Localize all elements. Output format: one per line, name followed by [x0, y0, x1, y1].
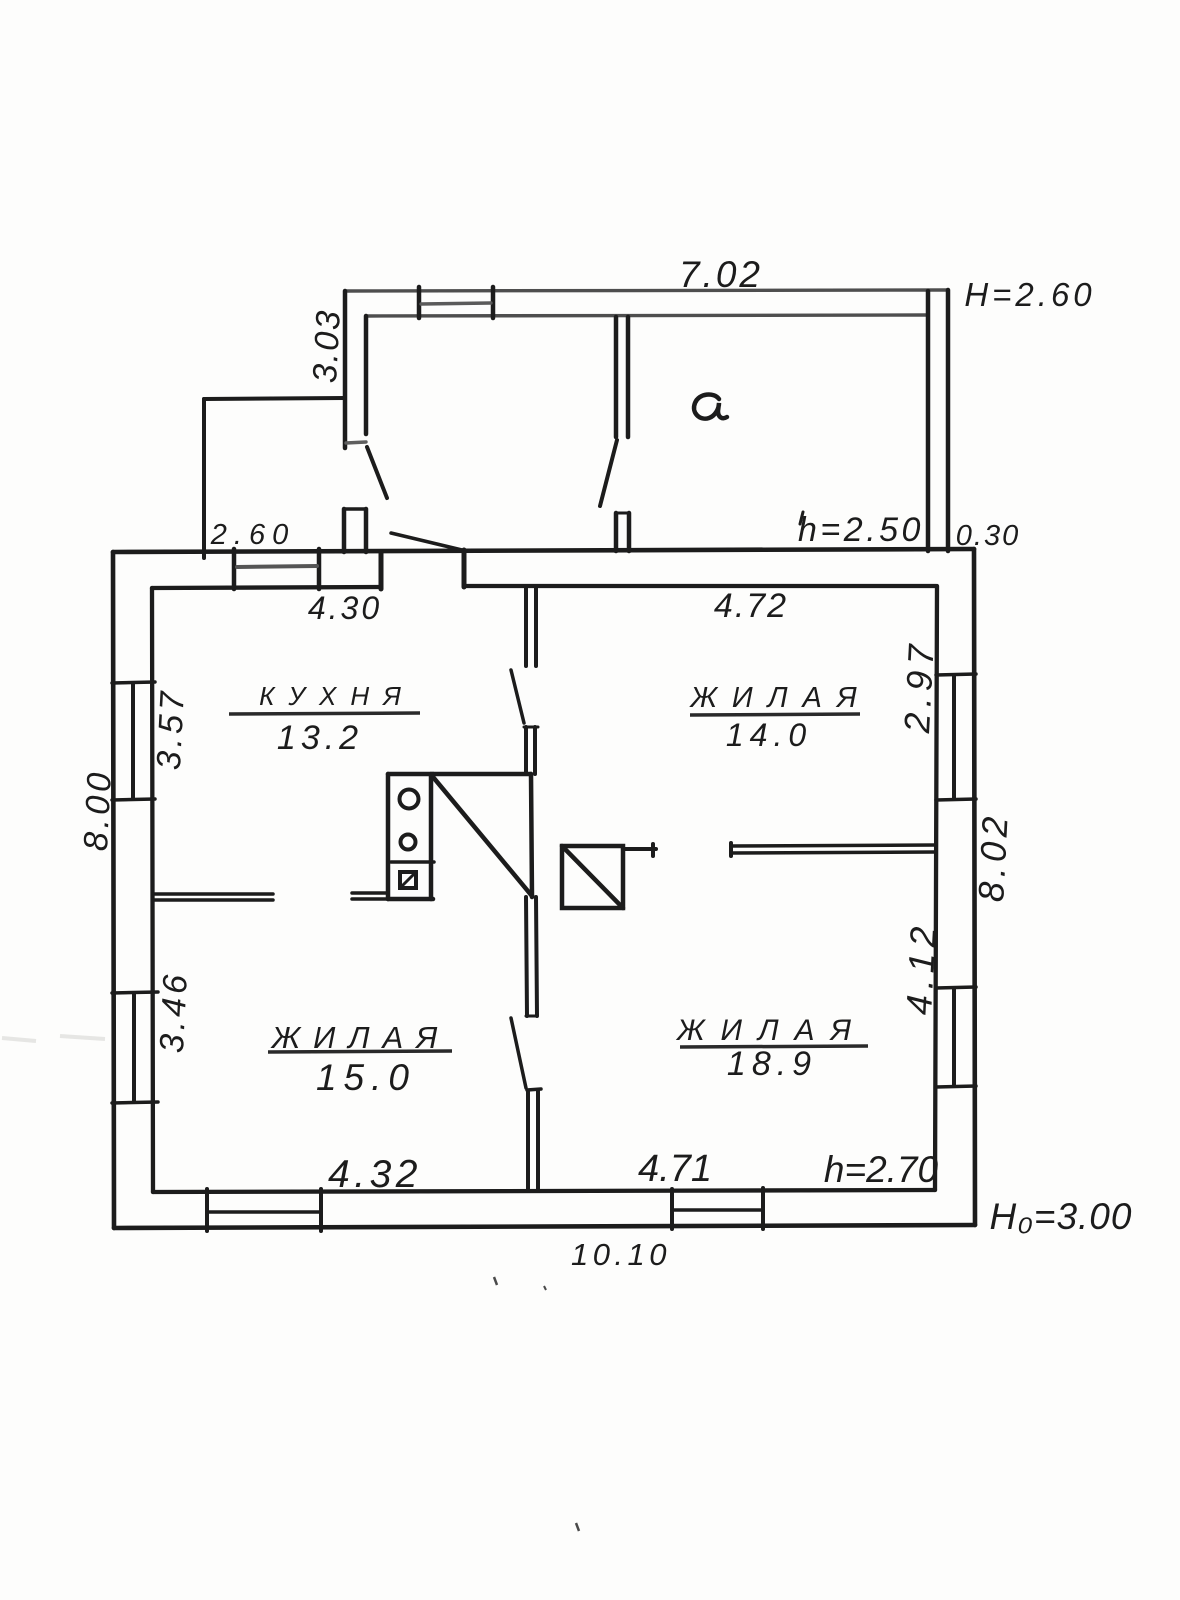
svg-text:ЖИЛАЯ: ЖИЛАЯ	[688, 682, 871, 714]
svg-text:15.0: 15.0	[316, 1057, 416, 1098]
svg-text:H=2.60: H=2.60	[964, 276, 1095, 313]
svg-text:3.57: 3.57	[150, 687, 192, 771]
svg-text:18.9: 18.9	[727, 1045, 817, 1083]
svg-text:3.03: 3.03	[306, 308, 348, 384]
svg-text:7.02: 7.02	[679, 254, 763, 295]
svg-text:h=2.50: h=2.50	[798, 511, 924, 549]
svg-text:4.71: 4.71	[638, 1148, 712, 1190]
svg-text:4.30: 4.30	[308, 590, 382, 626]
svg-text:3.46: 3.46	[153, 970, 195, 1054]
svg-text:4.32: 4.32	[328, 1153, 422, 1196]
svg-text:13.2: 13.2	[277, 719, 363, 757]
svg-text:КУХНЯ: КУХНЯ	[259, 681, 415, 711]
svg-text:H₀=3.00: H₀=3.00	[990, 1196, 1133, 1237]
svg-text:10.10: 10.10	[571, 1237, 671, 1272]
svg-text:h=2.70: h=2.70	[824, 1149, 939, 1190]
svg-text:8.02: 8.02	[970, 811, 1016, 903]
svg-text:4.72: 4.72	[714, 587, 788, 625]
svg-text:2.97: 2.97	[896, 638, 942, 735]
svg-text:14.0: 14.0	[726, 717, 812, 753]
svg-text:4.12: 4.12	[898, 920, 944, 1016]
svg-text:ЖИЛАЯ: ЖИЛАЯ	[675, 1014, 867, 1047]
svg-text:8.00: 8.00	[77, 768, 119, 852]
svg-text:2.60: 2.60	[210, 519, 295, 551]
svg-text:0.30: 0.30	[956, 520, 1020, 552]
